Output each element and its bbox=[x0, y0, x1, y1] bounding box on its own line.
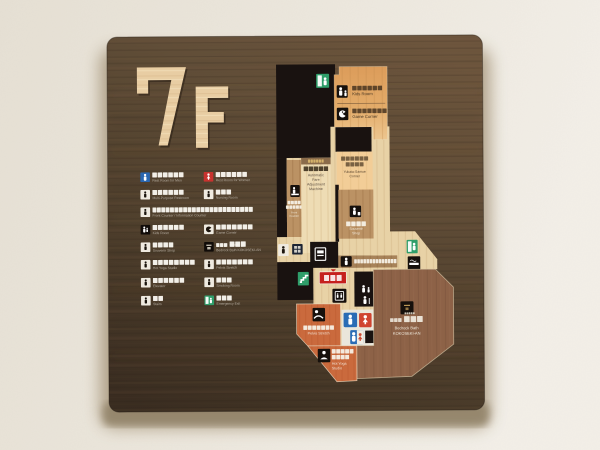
svg-text:KOKOSEKI-AN: KOKOSEKI-AN bbox=[393, 331, 421, 336]
svg-text:Kids Room: Kids Room bbox=[153, 231, 170, 235]
svg-text:Counter: Counter bbox=[290, 214, 299, 218]
svg-text:Multi-Purpose Restroom: Multi-Purpose Restroom bbox=[152, 196, 189, 200]
svg-text:Machine: Machine bbox=[309, 187, 323, 191]
svg-text:Kids Room: Kids Room bbox=[352, 91, 373, 96]
svg-text:Bedrock Bath KOKOSEKI-AN: Bedrock Bath KOKOSEKI-AN bbox=[216, 248, 261, 252]
svg-text:Emergency Exit: Emergency Exit bbox=[216, 302, 240, 306]
svg-text:Smoking Room: Smoking Room bbox=[216, 284, 239, 288]
svg-text:Shop: Shop bbox=[352, 231, 360, 235]
svg-text:Game Corner: Game Corner bbox=[216, 231, 237, 235]
svg-text:Studio: Studio bbox=[332, 366, 342, 370]
svg-text:Hot Yoga Studio: Hot Yoga Studio bbox=[153, 266, 177, 270]
svg-text:Nursing Room: Nursing Room bbox=[216, 196, 238, 200]
svg-text:Fare: Fare bbox=[312, 178, 319, 182]
svg-text:Adjustment: Adjustment bbox=[307, 182, 325, 186]
svg-text:Bedrock Bath: Bedrock Bath bbox=[395, 325, 419, 330]
svg-text:Elevator: Elevator bbox=[153, 284, 166, 288]
svg-text:Pelvis Stretch: Pelvis Stretch bbox=[308, 331, 330, 335]
svg-text:Pelvis Stretch: Pelvis Stretch bbox=[216, 266, 237, 270]
svg-text:Front Counter / Information Co: Front Counter / Information Counter bbox=[153, 213, 208, 217]
svg-text:Stairs: Stairs bbox=[153, 302, 162, 306]
svg-text:Game Corner: Game Corner bbox=[352, 114, 378, 119]
svg-text:Corner: Corner bbox=[350, 174, 361, 178]
svg-text:Rest Room for Women: Rest Room for Women bbox=[216, 178, 251, 182]
svg-text:Hot Yoga: Hot Yoga bbox=[332, 362, 347, 366]
svg-text:Automatic: Automatic bbox=[308, 173, 324, 177]
svg-text:Souvenir Shop: Souvenir Shop bbox=[153, 249, 175, 253]
svg-text:Rest Room for Men: Rest Room for Men bbox=[152, 178, 182, 182]
